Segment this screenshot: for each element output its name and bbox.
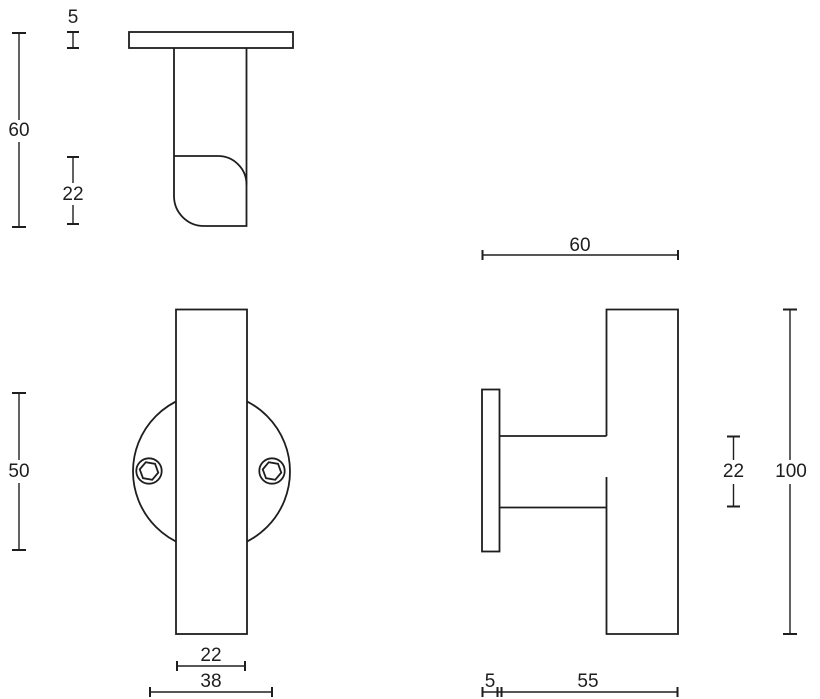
dim-label-screw-spacing: 38 — [200, 671, 221, 692]
dim-label-plate-thickness: 5 — [68, 7, 79, 28]
dim-plate-thickness: 5 — [67, 7, 79, 48]
dim-total-depth: 60 — [8, 33, 29, 227]
dim-rose-diameter: 50 — [8, 393, 29, 550]
knob-drawing-svg: 5 60 22 — [0, 0, 820, 699]
stem-and-knob-profile — [174, 48, 247, 226]
dim-label-rose-diameter: 50 — [8, 461, 29, 482]
dim-bar-length: 100 — [775, 310, 807, 635]
wall-plate-profile — [129, 32, 293, 48]
dim-screw-spacing: 38 — [150, 671, 272, 697]
dim-side-total-depth: 60 — [483, 235, 679, 260]
dim-bar-width: 22 — [177, 645, 245, 671]
dim-label-projection: 55 — [577, 671, 598, 692]
dim-label-side-plate-thickness: 5 — [485, 671, 496, 692]
dim-knob-depth: 22 — [62, 157, 83, 224]
dim-stem-diameter: 22 — [723, 437, 744, 507]
side-view: 60 22 100 5 55 — [482, 235, 807, 697]
screw-right — [259, 458, 284, 483]
dim-label-bar-width: 22 — [200, 645, 221, 666]
screw-left-hex-socket-icon — [138, 461, 159, 480]
front-view: 50 22 38 — [8, 310, 290, 698]
technical-drawing-canvas: 5 60 22 — [0, 0, 820, 699]
side-profile-view: 5 60 22 — [8, 7, 293, 227]
knob-rounded-edge-line — [174, 156, 247, 185]
knob-bar-front — [176, 310, 247, 635]
dim-label-bar-length: 100 — [775, 461, 807, 482]
dim-label-stem-diameter: 22 — [723, 461, 744, 482]
dim-label-knob-depth: 22 — [62, 184, 83, 205]
wall-plate-side — [482, 390, 500, 552]
dim-label-side-total-depth: 60 — [569, 235, 590, 256]
dim-plate-and-projection: 5 55 — [483, 671, 678, 697]
screw-left — [136, 458, 161, 483]
screw-right-hex-socket-icon — [261, 461, 282, 480]
knob-bar-side — [607, 310, 679, 635]
dim-label-total-depth: 60 — [8, 120, 29, 141]
